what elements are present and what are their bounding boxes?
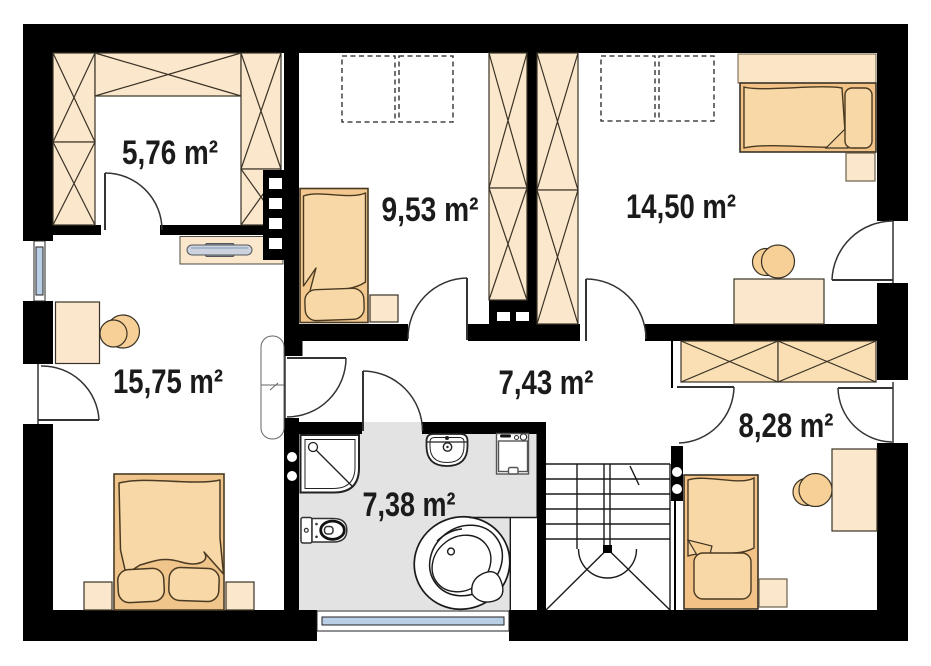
svg-text:7,43 m²: 7,43 m² [499,364,594,402]
svg-text:7,38 m²: 7,38 m² [363,486,456,524]
svg-text:5,76 m²: 5,76 m² [122,134,218,172]
svg-text:14,50 m²: 14,50 m² [626,188,736,226]
svg-text:8,28 m²: 8,28 m² [739,407,834,445]
svg-text:15,75 m²: 15,75 m² [113,363,223,401]
svg-text:9,53 m²: 9,53 m² [382,191,479,229]
